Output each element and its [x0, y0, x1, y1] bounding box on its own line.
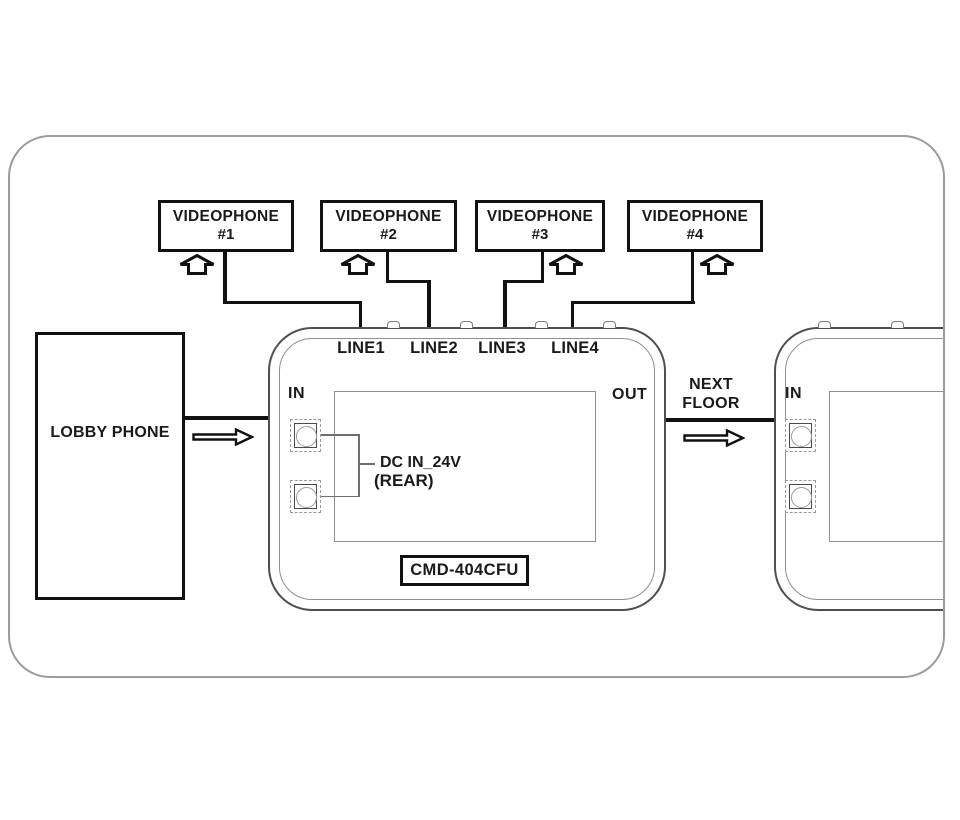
up-arrow-icon: [699, 254, 735, 275]
videophone-2-label: VIDEOPHONE: [335, 208, 441, 226]
videophone-1-number: #1: [218, 226, 235, 244]
top-notch: [603, 321, 616, 328]
wire-videophone3: [503, 280, 507, 329]
up-arrow-icon: [548, 254, 584, 275]
dc-bracket-line: [321, 434, 359, 436]
port-circle: [296, 426, 317, 447]
line1-label: LINE1: [337, 339, 385, 358]
diagram-frame: VIDEOPHONE #1 VIDEOPHONE #2 VIDEOPHONE #…: [8, 135, 945, 678]
up-arrow-icon: [340, 254, 376, 275]
top-notch: [891, 321, 904, 328]
videophone-2-number: #2: [380, 226, 397, 244]
wire-videophone2: [386, 252, 390, 283]
wire-unit-to-next-floor: [666, 418, 774, 422]
top-notch: [387, 321, 400, 328]
model-badge: CMD-404CFU: [400, 555, 529, 586]
up-arrow-icon: [179, 254, 215, 275]
wire-videophone2: [427, 280, 431, 329]
line2-label: LINE2: [410, 339, 458, 358]
dc-in-label: DC IN_24V: [380, 454, 461, 472]
wire-videophone1: [223, 252, 227, 304]
videophone-4-number: #4: [687, 226, 704, 244]
lobby-phone-label: LOBBY PHONE: [35, 424, 185, 442]
right-arrow-icon: [192, 428, 254, 446]
line3-label: LINE3: [478, 339, 526, 358]
top-notch: [818, 321, 831, 328]
top-notch: [460, 321, 473, 328]
dc-in-port: [785, 419, 816, 452]
line4-label: LINE4: [551, 339, 599, 358]
wire-videophone1: [359, 301, 363, 329]
wire-videophone3: [541, 252, 545, 283]
videophone-4-box: VIDEOPHONE #4: [627, 200, 763, 252]
wire-lobby-to-unit: [185, 416, 273, 420]
lobby-phone-box: [35, 332, 185, 600]
model-label: CMD-404CFU: [410, 561, 519, 580]
videophone-3-label: VIDEOPHONE: [487, 208, 593, 226]
videophone-4-label: VIDEOPHONE: [642, 208, 748, 226]
wire-videophone4: [691, 252, 695, 304]
diagram-canvas: VIDEOPHONE #1 VIDEOPHONE #2 VIDEOPHONE #…: [0, 0, 960, 820]
dc-in-port: [290, 480, 321, 513]
wire-videophone1: [223, 301, 362, 305]
dc-in-port: [290, 419, 321, 452]
dc-bracket-line: [321, 496, 359, 498]
wire-videophone3: [503, 280, 544, 284]
out-label: OUT: [612, 386, 647, 404]
videophone-1-label: VIDEOPHONE: [173, 208, 279, 226]
videophone-3-number: #3: [532, 226, 549, 244]
in-label: IN: [785, 385, 802, 403]
rear-label: (REAR): [374, 471, 434, 491]
wire-videophone4: [571, 301, 695, 305]
port-circle: [791, 487, 812, 508]
videophone-1-box: VIDEOPHONE #1: [158, 200, 294, 252]
dc-in-port: [785, 480, 816, 513]
in-label: IN: [288, 385, 305, 403]
top-notch: [535, 321, 548, 328]
port-circle: [296, 487, 317, 508]
dc-bracket-line: [358, 434, 360, 497]
right-arrow-icon: [683, 429, 745, 447]
videophone-2-box: VIDEOPHONE #2: [320, 200, 457, 252]
videophone-3-box: VIDEOPHONE #3: [475, 200, 605, 252]
port-circle: [791, 426, 812, 447]
wire-videophone2: [386, 280, 431, 284]
unit-inner-panel: [334, 391, 596, 542]
dc-bracket-line: [358, 463, 375, 465]
unit-inner-panel: [829, 391, 945, 542]
wire-videophone4: [571, 301, 575, 329]
next-floor-label: NEXT FLOOR: [682, 375, 740, 413]
